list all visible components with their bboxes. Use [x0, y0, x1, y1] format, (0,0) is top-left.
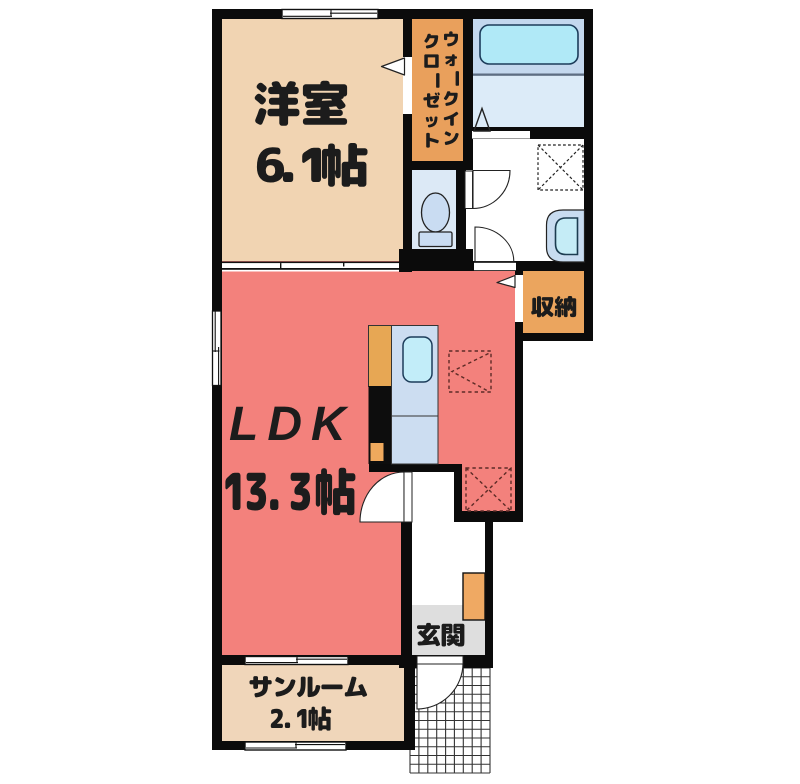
svg-text:LDK: LDK — [229, 398, 355, 451]
